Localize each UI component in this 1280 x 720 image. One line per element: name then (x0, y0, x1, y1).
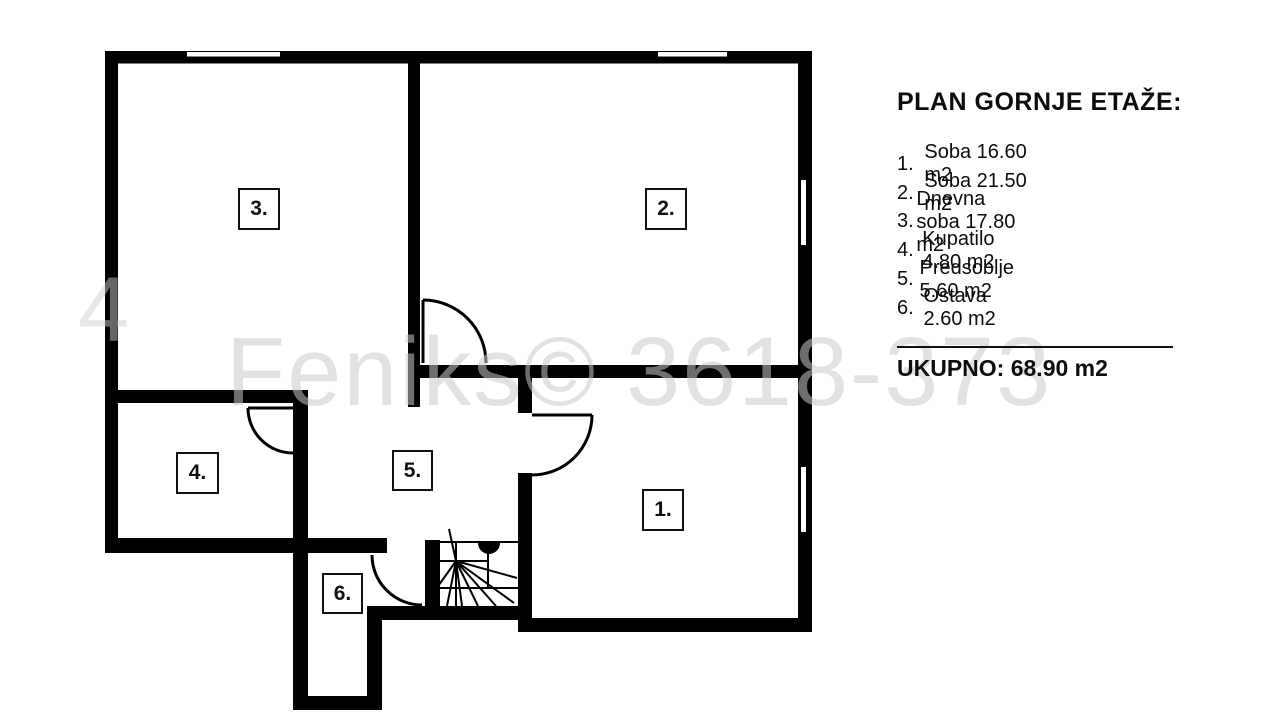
wall-stairs-bottom (367, 606, 532, 620)
wall-room6-right (367, 607, 382, 710)
wall-room1-left-upper (518, 367, 532, 413)
door-room-6 (372, 555, 422, 605)
legend-room-list: 1. Soba 16.60 m2 2. Soba 21.50 m2 3. Dne… (897, 150, 1028, 323)
legend-item-number: 4. (897, 239, 922, 262)
legend-total: UKUPNO: 68.90 m2 (897, 355, 1108, 382)
stair-winder-fan (436, 529, 517, 606)
room-label-3: 3. (238, 188, 280, 230)
wall-room3-bottom (105, 390, 308, 403)
wall-right (798, 51, 812, 632)
door-room-2 (423, 300, 486, 363)
legend-item-number: 1. (897, 153, 924, 176)
room-label-2: 2. (645, 188, 687, 230)
legend-item-6: 6. Ostava 2.60 m2 (897, 294, 1028, 323)
windows (187, 52, 806, 532)
wall-room4-bottom (105, 538, 387, 553)
legend-title: PLAN GORNJE ETAŽE: (897, 88, 1182, 117)
walls (105, 51, 812, 710)
legend-item-number: 5. (897, 268, 920, 291)
wall-room1-bottom (518, 618, 812, 632)
door-room-4 (248, 408, 293, 453)
legend-item-number: 3. (897, 210, 916, 233)
wall-room1-left-lower (518, 473, 532, 632)
room-label-4: 4. (176, 452, 219, 494)
wall-stairs-left (425, 540, 440, 618)
legend-item-text: Ostava 2.60 m2 (924, 285, 1028, 331)
window-room1-right (801, 467, 806, 532)
window-room2-right (801, 180, 806, 245)
wall-divider-3-2 (408, 51, 420, 407)
window-room2-top (658, 52, 727, 57)
floor-plan-page: 4 Feniks© 3618-373 1. 2. 3. 4. 5. 6. PLA… (0, 0, 1280, 720)
stair-direction-marker (478, 543, 500, 554)
window-room3-top (187, 52, 280, 57)
room-label-6: 6. (322, 573, 363, 614)
door-room-1 (532, 415, 592, 475)
wall-left (105, 51, 118, 553)
wall-room2-bottom (418, 365, 812, 378)
room-label-5: 5. (392, 450, 433, 491)
legend-separator-line (897, 346, 1173, 348)
room-label-1: 1. (642, 489, 684, 531)
legend-item-number: 6. (897, 297, 924, 320)
